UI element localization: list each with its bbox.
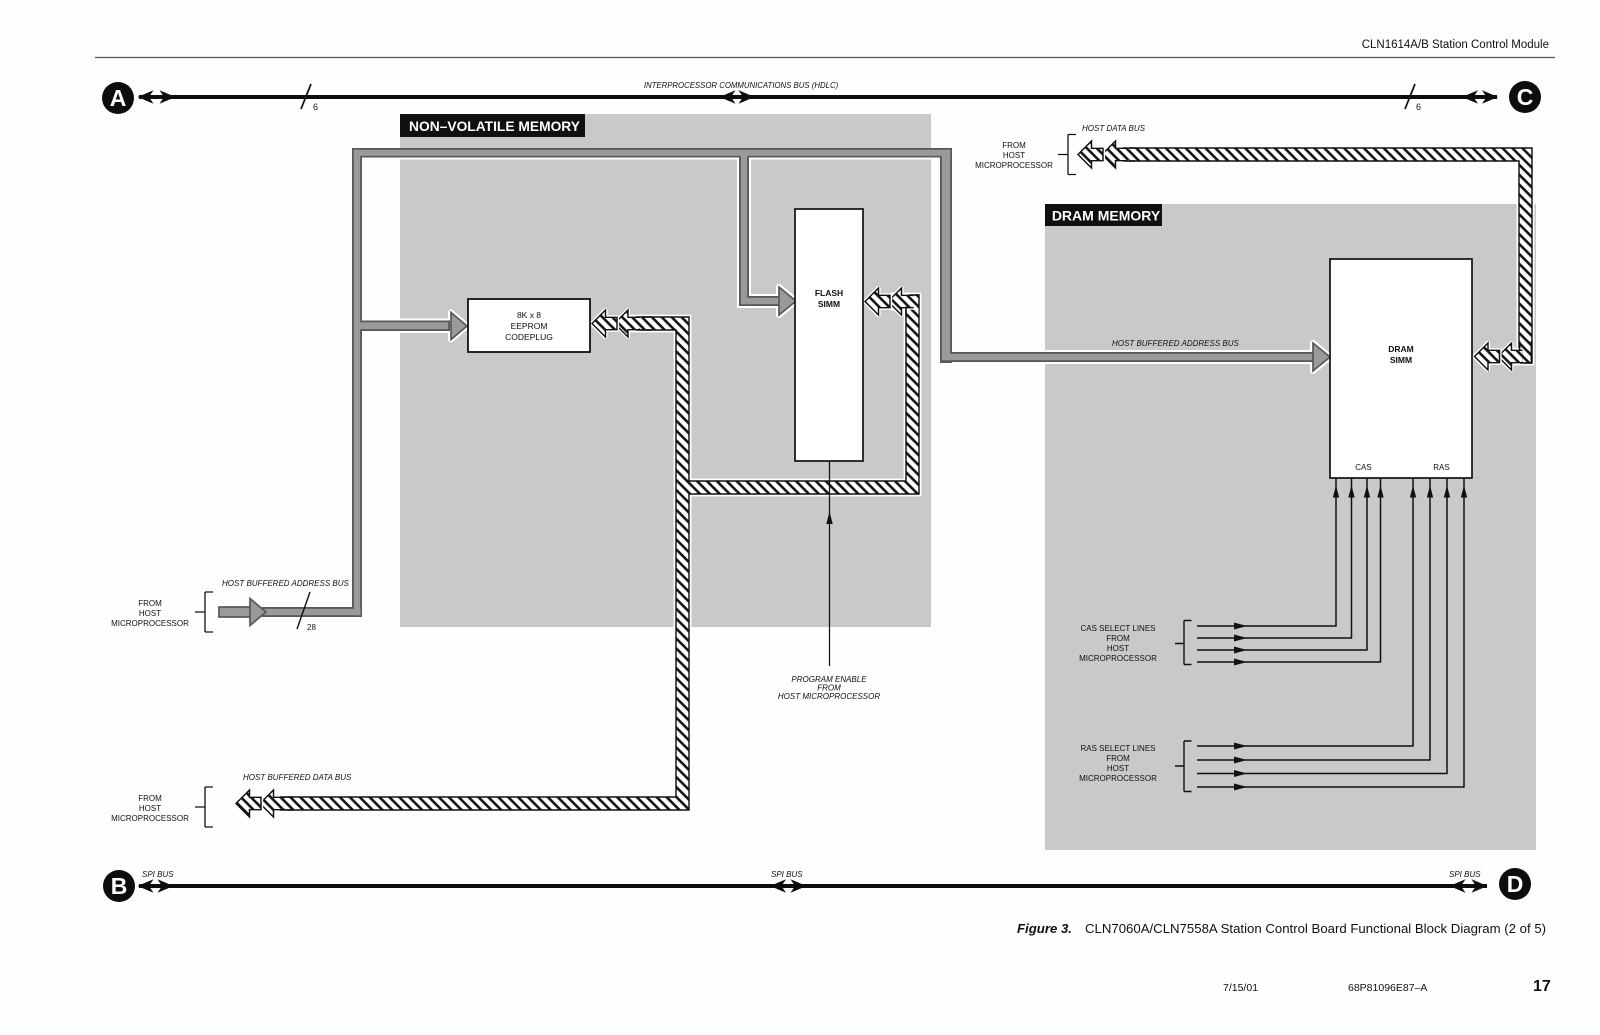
svg-text:8K x 8: 8K x 8	[517, 310, 541, 320]
svg-text:INTERPROCESSOR COMMUNICATIONS: INTERPROCESSOR COMMUNICATIONS BUS (HDLC)	[644, 81, 839, 90]
svg-text:HOST MICROPROCESSOR: HOST MICROPROCESSOR	[778, 692, 880, 701]
svg-text:SPI BUS: SPI BUS	[771, 870, 803, 879]
svg-text:CAS: CAS	[1355, 463, 1371, 472]
svg-text:D: D	[1507, 871, 1524, 897]
svg-text:CAS SELECT LINES: CAS SELECT LINES	[1081, 624, 1156, 633]
svg-text:Figure 3.: Figure 3.	[1017, 921, 1072, 936]
svg-text:6: 6	[313, 102, 318, 112]
svg-text:RAS SELECT LINES: RAS SELECT LINES	[1081, 744, 1156, 753]
svg-text:A: A	[110, 85, 127, 111]
svg-text:B: B	[111, 873, 128, 899]
svg-text:6: 6	[1416, 102, 1421, 112]
svg-text:DRAM MEMORY: DRAM MEMORY	[1052, 208, 1161, 224]
svg-text:MICROPROCESSOR: MICROPROCESSOR	[111, 619, 189, 628]
svg-text:28: 28	[307, 623, 316, 632]
svg-text:SIMM: SIMM	[1390, 355, 1412, 365]
svg-text:MICROPROCESSOR: MICROPROCESSOR	[1079, 654, 1157, 663]
svg-text:FROM: FROM	[1106, 754, 1130, 763]
svg-text:HOST BUFFERED ADDRESS BUS: HOST BUFFERED ADDRESS BUS	[1112, 339, 1239, 348]
svg-text:CLN7060A/CLN7558A Station Cont: CLN7060A/CLN7558A Station Control Board …	[1085, 921, 1546, 936]
svg-text:HOST BUFFERED ADDRESS BUS: HOST BUFFERED ADDRESS BUS	[222, 579, 349, 588]
svg-text:7/15/01: 7/15/01	[1223, 982, 1258, 994]
svg-text:17: 17	[1533, 978, 1551, 995]
svg-text:HOST DATA BUS: HOST DATA BUS	[1082, 124, 1146, 133]
svg-text:NON–VOLATILE MEMORY: NON–VOLATILE MEMORY	[409, 119, 580, 134]
svg-text:CODEPLUG: CODEPLUG	[505, 332, 553, 342]
svg-text:MICROPROCESSOR: MICROPROCESSOR	[111, 814, 189, 823]
svg-text:HOST: HOST	[1107, 644, 1129, 653]
svg-text:DRAM: DRAM	[1388, 344, 1414, 354]
svg-text:FROM: FROM	[1002, 141, 1026, 150]
svg-text:CLN1614A/B Station Control Mod: CLN1614A/B Station Control Module	[1362, 39, 1549, 51]
svg-text:FROM: FROM	[138, 794, 162, 803]
svg-text:RAS: RAS	[1433, 463, 1449, 472]
svg-text:SIMM: SIMM	[818, 299, 840, 309]
svg-text:HOST BUFFERED DATA BUS: HOST BUFFERED DATA BUS	[243, 773, 352, 782]
svg-text:FROM: FROM	[138, 599, 162, 608]
svg-text:EEPROM: EEPROM	[511, 321, 548, 331]
svg-text:FROM: FROM	[1106, 634, 1130, 643]
svg-text:C: C	[1517, 84, 1534, 110]
svg-text:MICROPROCESSOR: MICROPROCESSOR	[1079, 774, 1157, 783]
svg-text:MICROPROCESSOR: MICROPROCESSOR	[975, 161, 1053, 170]
svg-text:HOST: HOST	[139, 609, 161, 618]
svg-text:FLASH: FLASH	[815, 288, 843, 298]
svg-text:68P81096E87–A: 68P81096E87–A	[1348, 982, 1427, 994]
svg-text:HOST: HOST	[1003, 151, 1025, 160]
svg-text:HOST: HOST	[139, 804, 161, 813]
svg-text:HOST: HOST	[1107, 764, 1129, 773]
svg-text:SPI BUS: SPI BUS	[142, 870, 174, 879]
svg-text:SPI BUS: SPI BUS	[1449, 870, 1481, 879]
